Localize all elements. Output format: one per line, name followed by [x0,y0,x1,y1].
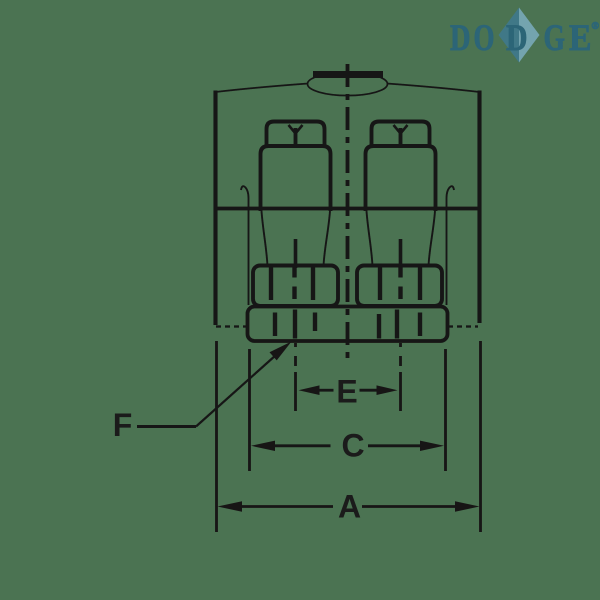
svg-text:®: ® [592,21,600,32]
svg-text:D: D [506,18,528,59]
svg-text:E: E [336,374,357,410]
svg-text:G: G [544,18,566,59]
svg-text:D: D [450,18,471,59]
svg-text:A: A [338,489,361,525]
svg-text:E: E [569,18,592,59]
svg-text:F: F [113,407,133,443]
svg-text:C: C [341,428,364,464]
svg-text:O: O [474,18,495,59]
